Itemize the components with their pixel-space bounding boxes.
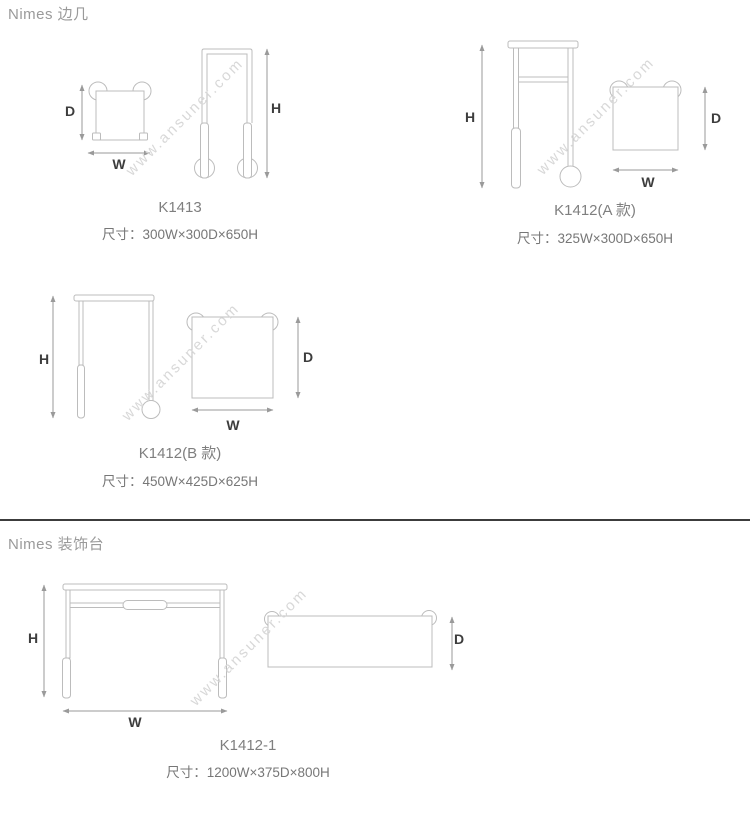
model-size: 尺寸：450W×425D×625H [60,470,300,490]
spec-sheet-page: Nimes 边几 D W H [0,0,750,822]
model-name: K1412-1 [128,737,368,754]
width-letter: W [641,175,654,189]
figure-k1412b: H D W [30,280,330,440]
k1412-1-front-view [44,584,227,711]
k1412-1-top-view [265,611,453,671]
depth-letter: D [711,111,721,125]
height-letter: H [28,631,38,645]
section-heading-side-tables: Nimes 边几 [8,3,89,24]
label-k1412a: K1412(A 款) 尺寸：325W×300D×650H [475,199,715,247]
section-heading-console: Nimes 装饰台 [8,533,104,554]
model-name: K1412(B 款) [60,442,300,463]
model-size: 尺寸：1200W×375D×800H [128,761,368,781]
k1412b-drawing [30,280,330,440]
k1413-top-view [82,82,151,153]
label-k1412b: K1412(B 款) 尺寸：450W×425D×625H [60,442,300,490]
model-size: 尺寸：300W×300D×650H [60,223,300,243]
depth-letter: D [65,104,75,118]
height-letter: H [39,352,49,366]
depth-letter: D [303,350,313,364]
width-letter: W [226,418,239,432]
height-letter: H [271,101,281,115]
label-k1412-1: K1412-1 尺寸：1200W×375D×800H [128,737,368,781]
k1412-1-drawing [20,570,480,735]
model-size: 尺寸：325W×300D×650H [475,227,715,247]
width-letter: W [112,157,125,171]
k1412a-front-view [482,41,581,188]
k1412b-top-view [187,313,298,410]
depth-letter: D [454,632,464,646]
figure-k1412-1: H W D [20,570,480,735]
width-letter: W [128,715,141,729]
height-letter: H [465,110,475,124]
k1412a-drawing [450,30,740,200]
k1413-drawing [60,33,290,185]
k1413-front-view [195,49,268,178]
model-name: K1412(A 款) [475,199,715,220]
model-name: K1413 [60,199,300,216]
figure-k1412a: H D W [450,30,740,200]
figure-k1413: D W H [60,33,290,185]
k1412a-top-view [610,81,705,170]
label-k1413: K1413 尺寸：300W×300D×650H [60,199,300,243]
section-divider [0,519,750,521]
k1412b-front-view [53,295,160,419]
